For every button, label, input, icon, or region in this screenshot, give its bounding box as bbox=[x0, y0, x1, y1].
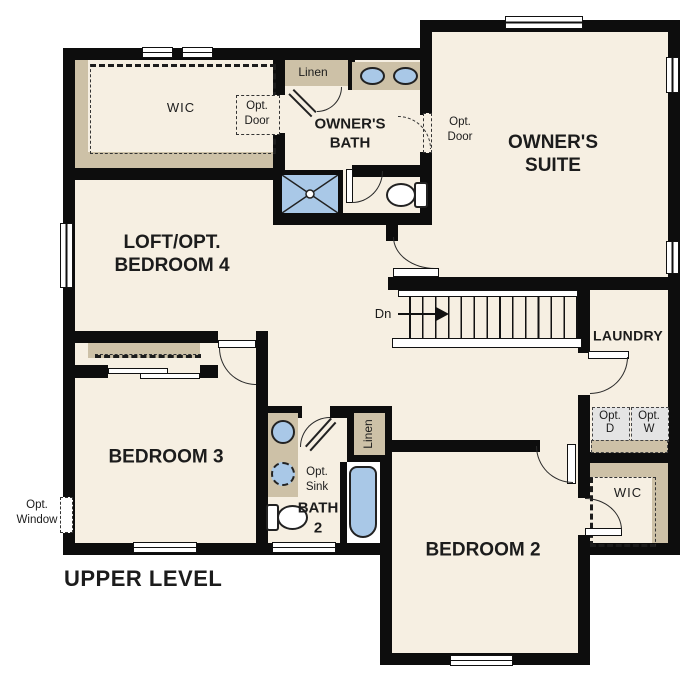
sink-icon bbox=[393, 67, 418, 85]
label-linen-bath2: Linen bbox=[361, 419, 377, 448]
bypass-door-icon bbox=[140, 373, 200, 379]
window-icon bbox=[182, 47, 213, 58]
wall bbox=[340, 462, 347, 543]
laundry-counter bbox=[591, 440, 668, 453]
room-label-wic-owner: WIC bbox=[167, 100, 195, 116]
page-title: UPPER LEVEL bbox=[64, 566, 222, 592]
wall bbox=[63, 543, 392, 555]
down-arrow-icon bbox=[436, 307, 449, 321]
closet-shelf bbox=[75, 60, 88, 152]
sink-icon bbox=[271, 420, 295, 444]
room-label-bath2: BATH 2 bbox=[298, 499, 339, 538]
wall bbox=[330, 406, 347, 418]
toilet-icon bbox=[414, 182, 428, 208]
label-dn: Dn bbox=[375, 306, 392, 322]
label-linen: Linen bbox=[298, 65, 327, 81]
label-opt-washer: Opt. W bbox=[638, 410, 660, 436]
wall bbox=[380, 440, 540, 452]
label-opt-door: Opt. Door bbox=[448, 115, 473, 145]
room-label-bedroom2: BEDROOM 2 bbox=[425, 540, 540, 563]
door-leaf bbox=[218, 340, 256, 348]
floor-plan: WIC Opt. Door Linen OWNER'S BATH Opt. Do… bbox=[0, 0, 687, 687]
wall bbox=[63, 48, 432, 60]
wall bbox=[63, 168, 285, 180]
room-label-owners-suite: OWNER'S SUITE bbox=[508, 132, 598, 178]
wall bbox=[380, 440, 392, 665]
closet-shelf bbox=[75, 152, 273, 168]
wall bbox=[420, 20, 432, 115]
room-label-owners-bath: OWNER'S BATH bbox=[314, 115, 385, 153]
floor-suite-top bbox=[428, 28, 668, 68]
wall bbox=[63, 48, 75, 555]
door-leaf bbox=[393, 268, 439, 277]
label-opt-sink: Opt. Sink bbox=[306, 465, 328, 495]
wall bbox=[200, 365, 218, 378]
room-label-bedroom3: BEDROOM 3 bbox=[108, 447, 223, 470]
opt-window-icon bbox=[60, 497, 73, 533]
stair-rail bbox=[392, 338, 582, 348]
wall bbox=[63, 331, 218, 343]
closet-rod bbox=[95, 354, 201, 358]
label-opt-dryer: Opt. D bbox=[599, 410, 621, 436]
window-icon bbox=[505, 16, 583, 29]
wall bbox=[388, 277, 680, 290]
window-icon bbox=[272, 542, 336, 553]
toilet-icon bbox=[386, 183, 416, 207]
wall bbox=[345, 213, 432, 225]
wall bbox=[578, 535, 590, 665]
window-icon bbox=[60, 223, 73, 288]
sink-icon bbox=[360, 67, 385, 85]
room-label-laundry: LAUNDRY bbox=[593, 327, 663, 345]
window-icon bbox=[450, 655, 513, 666]
window-icon bbox=[133, 542, 197, 553]
wall bbox=[578, 452, 680, 463]
down-arrow-line bbox=[398, 313, 436, 315]
tub-icon bbox=[349, 466, 377, 538]
label-opt-door: Opt. Door bbox=[245, 99, 270, 129]
room-label-loft: LOFT/OPT. BEDROOM 4 bbox=[114, 232, 229, 278]
window-icon bbox=[666, 241, 679, 274]
window-icon bbox=[666, 57, 679, 93]
label-opt-window: Opt. Window bbox=[17, 498, 58, 528]
wall bbox=[578, 395, 590, 498]
window-icon bbox=[142, 47, 173, 58]
stair-rail bbox=[398, 290, 578, 297]
shower-icon bbox=[277, 170, 343, 218]
stairs-icon bbox=[398, 297, 578, 339]
wall bbox=[63, 365, 108, 378]
opt-sink-icon bbox=[271, 462, 295, 486]
room-label-wic-bedroom2: WIC bbox=[614, 485, 642, 501]
